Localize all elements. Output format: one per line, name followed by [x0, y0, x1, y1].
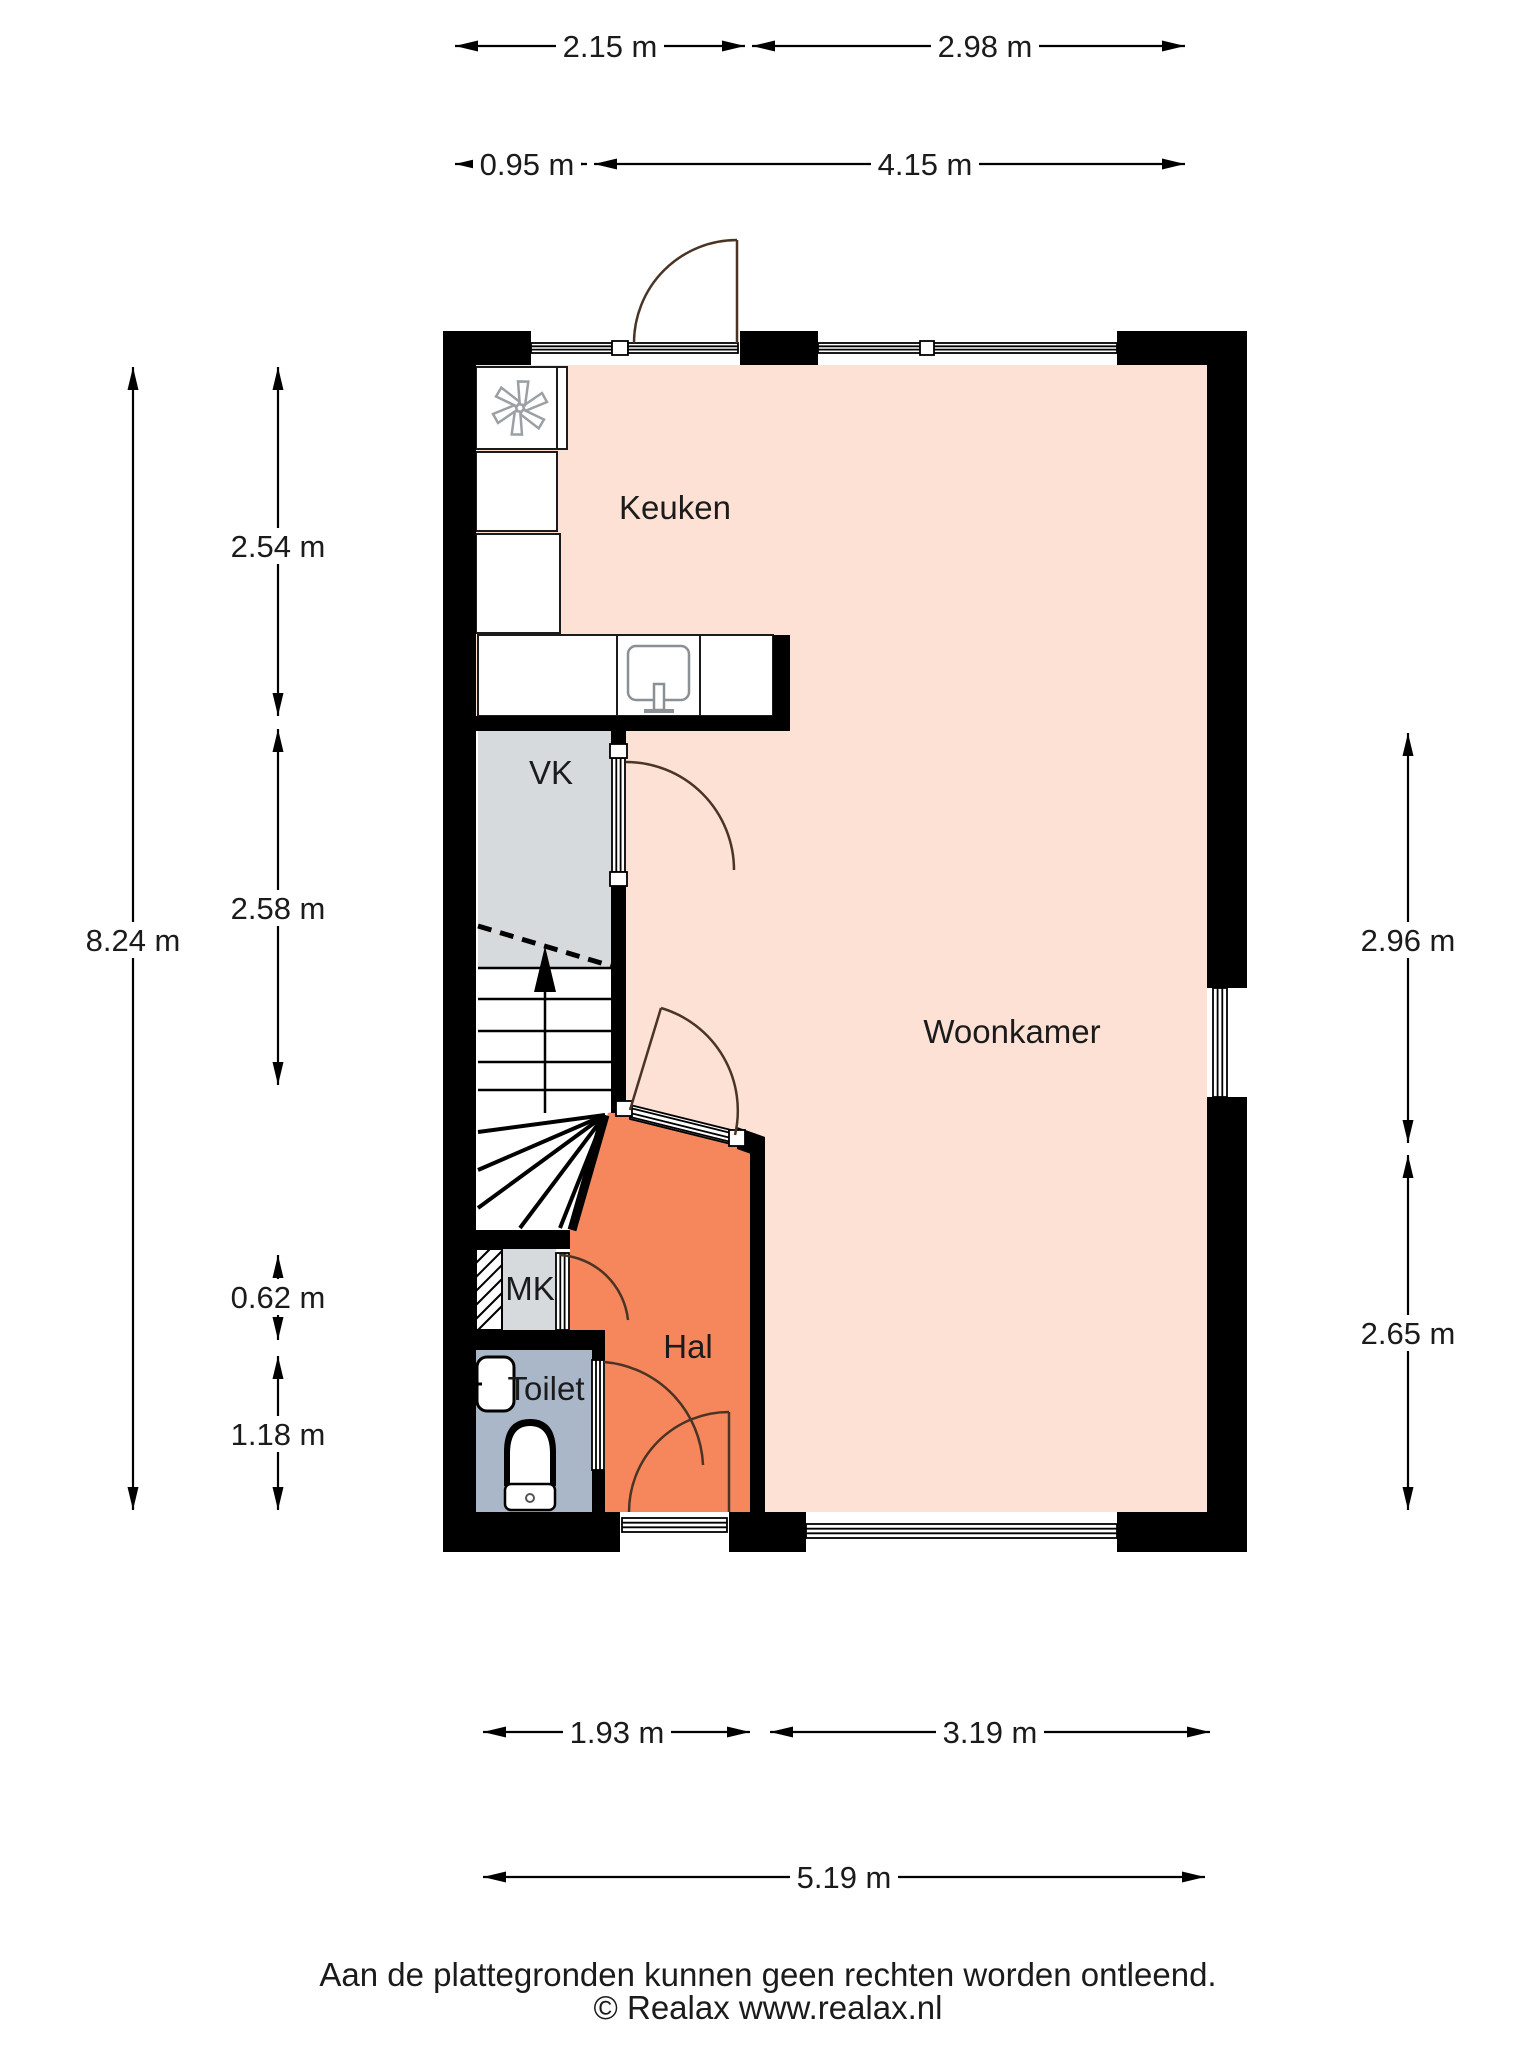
label-toilet: Toilet [507, 1370, 584, 1407]
dim-bottom1-b: 3.19 m [943, 1715, 1038, 1750]
floorplan-canvas: Keuken VK Woonkamer MK Hal Toilet 2.15 m… [0, 0, 1536, 2048]
footer-copyright: © Realax www.realax.nl [594, 1989, 943, 2026]
window-top-left [531, 341, 628, 355]
label-hal: Hal [663, 1328, 713, 1365]
dim-left-1: 2.54 m [231, 529, 326, 564]
floorplan-page: Keuken VK Woonkamer MK Hal Toilet 2.15 m… [0, 0, 1536, 2048]
dim-top2-b: 4.15 m [878, 147, 973, 182]
dim-right-1: 2.96 m [1361, 923, 1456, 958]
wall-mk-bottom [476, 1330, 605, 1350]
window-bottom [806, 1524, 1117, 1538]
dim-left-4: 1.18 m [231, 1417, 326, 1452]
toilet-door-panel [592, 1360, 604, 1470]
kitchen-cabinet-1 [476, 452, 557, 531]
vk-door-panel [610, 744, 627, 886]
dim-left-3: 0.62 m [231, 1280, 326, 1315]
dim-top2-a: 0.95 m [480, 147, 575, 182]
wc-icon [504, 1419, 556, 1510]
dim-top1-a: 2.15 m [563, 29, 658, 64]
mk-door-panel [556, 1253, 569, 1330]
dim-left-outer: 8.24 m [86, 923, 181, 958]
wall-kitchen-divider [443, 716, 790, 731]
kitchen-cabinet-2 [476, 534, 560, 633]
dim-right-2: 2.65 m [1361, 1316, 1456, 1351]
window-mullion [612, 341, 628, 355]
window-mullion [920, 341, 934, 355]
wall-counter-stub [773, 635, 790, 716]
kitchen-appliance-fan [476, 367, 567, 449]
dim-bottom2: 5.19 m [797, 1860, 892, 1895]
window-top-right [818, 341, 1117, 355]
front-door-threshold [622, 1518, 727, 1532]
footer-disclaimer: Aan de plattegronden kunnen geen rechten… [319, 1956, 1216, 1993]
kitchen-counter [478, 635, 773, 716]
wall-hal-right [750, 1141, 765, 1512]
entry-door-threshold-top [628, 343, 738, 353]
wall-winder-bottom [476, 1230, 570, 1249]
footer: Aan de plattegronden kunnen geen rechten… [319, 1956, 1216, 2026]
label-mk: MK [505, 1270, 555, 1307]
dim-bottom1-a: 1.93 m [570, 1715, 665, 1750]
dim-left-2: 2.58 m [231, 891, 326, 926]
window-right-side [1213, 988, 1227, 1097]
wall-right [1207, 331, 1247, 1552]
mk-hatch-shaft [476, 1249, 502, 1330]
label-keuken: Keuken [619, 489, 731, 526]
label-vk: VK [529, 754, 573, 791]
dim-top1-b: 2.98 m [938, 29, 1033, 64]
entry-door-top [634, 240, 737, 343]
label-woonkamer: Woonkamer [923, 1013, 1100, 1050]
wall-left [443, 331, 476, 1552]
